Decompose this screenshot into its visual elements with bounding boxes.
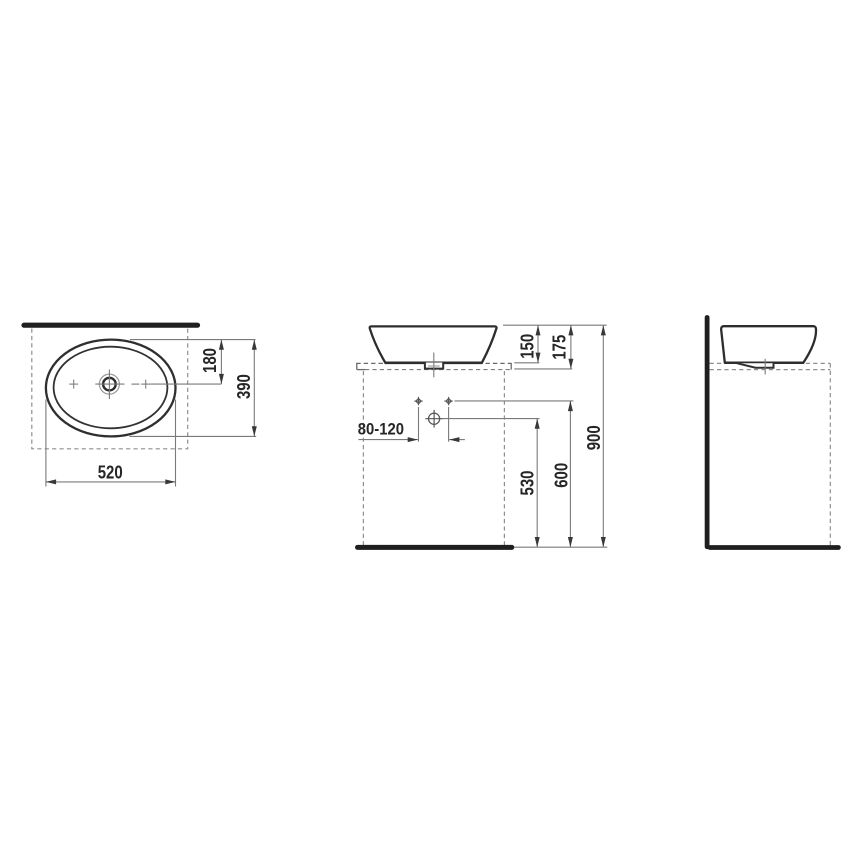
svg-text:175: 175 — [549, 335, 570, 360]
svg-text:390: 390 — [234, 374, 255, 399]
svg-text:150: 150 — [517, 334, 538, 359]
svg-text:530: 530 — [517, 471, 538, 496]
svg-text:180: 180 — [200, 348, 221, 373]
svg-text:80-120: 80-120 — [358, 421, 404, 439]
svg-text:600: 600 — [551, 463, 572, 488]
svg-text:900: 900 — [584, 425, 605, 450]
svg-text:520: 520 — [98, 462, 123, 483]
